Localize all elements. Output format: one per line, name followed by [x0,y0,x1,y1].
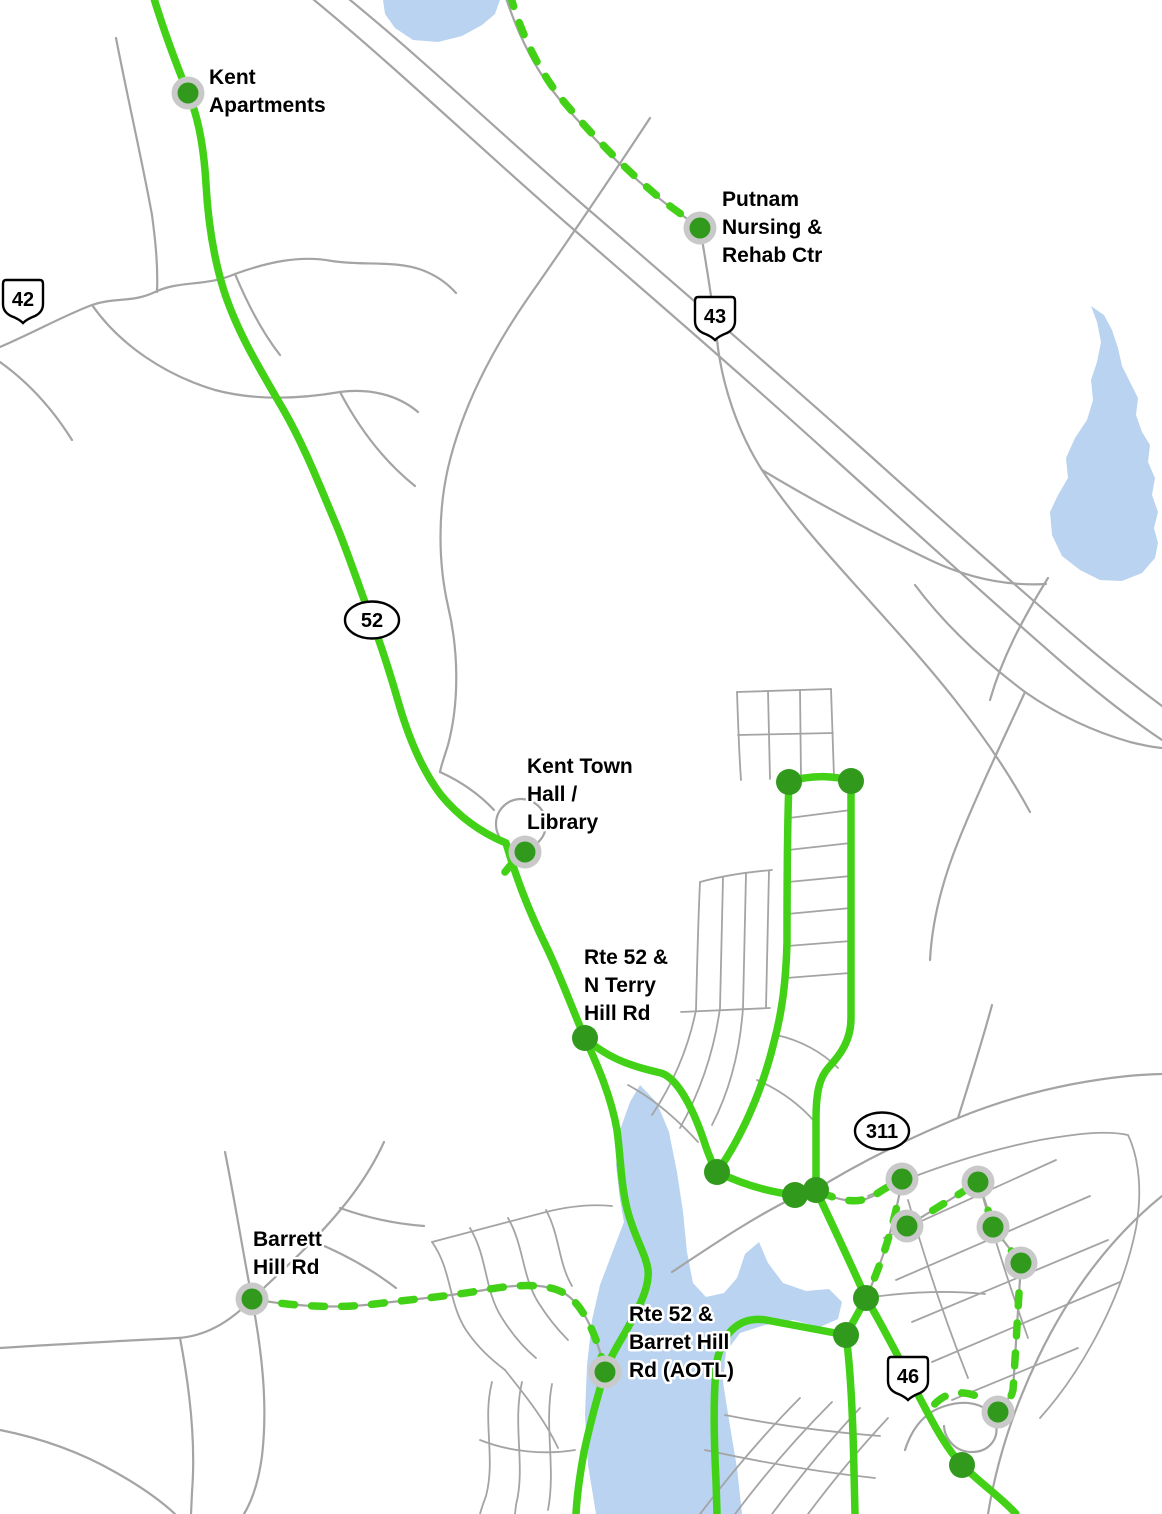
shield-route-46: 46 [888,1357,928,1400]
kent-town-hall-library-label: Kent TownHall /Library [527,755,633,834]
waypoint-junction-west [704,1159,730,1185]
route-barrett-dashed [252,1286,605,1372]
route-42-number: 42 [12,289,34,311]
route-east-link [816,1190,866,1298]
stop-rte-52-barret-hill-rd-aotl [595,1362,616,1383]
route-south [846,1335,855,1514]
waypoint-loop-top-right [838,768,864,794]
stop-stop-east-6 [988,1402,1009,1423]
shield-route-311: 311 [855,1113,909,1150]
map-canvas[interactable]: 42435231146 KentApartmentsPutnamNursing … [0,0,1162,1514]
stop-barrett-hill-rd [242,1289,263,1310]
route-43-number: 43 [704,306,726,328]
stop-rte-52-n-terry-hill-rd [572,1025,598,1051]
pond-top-left [383,0,500,42]
waypoint-loop-top-left [776,769,802,795]
waypoint-junction-south [949,1452,975,1478]
map-svg: 42435231146 KentApartmentsPutnamNursing … [0,0,1162,1514]
stop-stop-east-2 [968,1172,989,1193]
stop-stop-east-5 [1011,1253,1032,1274]
kent-apartments-label: KentApartments [209,66,326,117]
route-311-number: 311 [866,1121,898,1143]
shield-route-52: 52 [345,602,399,639]
stop-stop-east-4 [983,1217,1004,1238]
stop-stop-east-3 [897,1216,918,1237]
stop-kent-apartments [178,83,199,104]
route-52-number: 52 [361,610,383,632]
stops-layer [172,77,1038,1429]
route-46-number: 46 [897,1366,919,1388]
route-loop-right [816,781,851,1190]
shield-route-43: 43 [695,297,735,340]
labels-layer: KentApartmentsPutnamNursing &Rehab CtrKe… [209,66,822,1382]
waypoint-junction-center-b [803,1177,829,1203]
stop-kent-town-hall-library [515,842,536,863]
stop-stop-east-1 [892,1169,913,1190]
waypoint-junction-east-a [853,1285,879,1311]
route-putnam-dashed [510,0,700,228]
route-loop-left [717,782,789,1172]
waypoint-junction-east-b [833,1322,859,1348]
putnam-nursing-rehab-ctr-label: PutnamNursing &Rehab Ctr [722,188,822,267]
shield-route-42: 42 [3,280,43,323]
stop-putnam-nursing-rehab-ctr [690,218,711,239]
lake-east [1050,306,1158,581]
barrett-hill-rd-label: BarrettHill Rd [253,1228,322,1279]
rte-52-n-terry-hill-rd-label: Rte 52 &N TerryHill Rd [584,946,668,1025]
